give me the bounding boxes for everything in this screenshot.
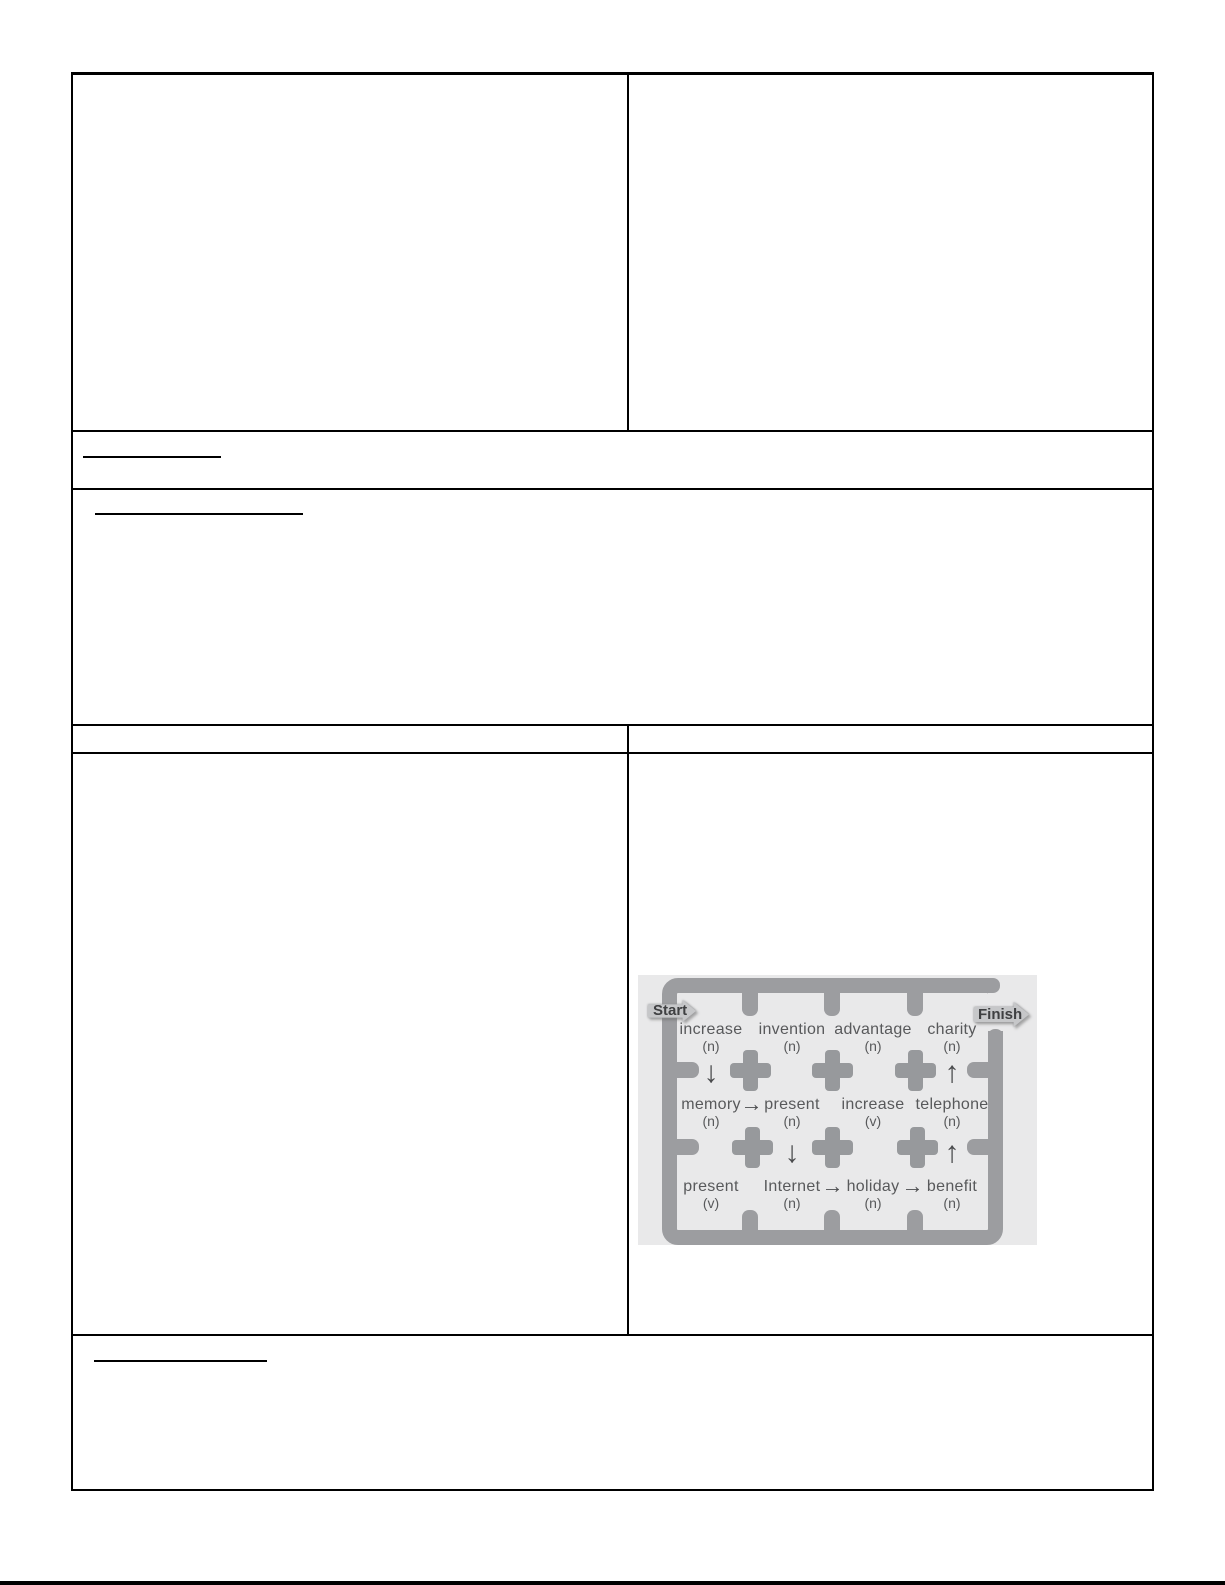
- maze-word-pos: (n): [702, 1113, 719, 1129]
- maze-word-pos: (n): [783, 1113, 800, 1129]
- path-arrow-right: →: [902, 1175, 924, 1197]
- maze-word-pos: (n): [943, 1113, 960, 1129]
- maze-word: benefit: [927, 1178, 977, 1195]
- maze-wall-tab: [967, 1139, 989, 1155]
- maze-word-pos: (n): [783, 1038, 800, 1054]
- maze-word-cell: benefit(n): [927, 1178, 977, 1212]
- maze-wall-tab: [676, 1139, 699, 1155]
- maze-cross-block: [732, 1127, 773, 1168]
- maze-word: telephone: [916, 1096, 989, 1113]
- maze-wall-endcap: [980, 978, 1000, 993]
- maze-word-cell: present(n): [764, 1096, 819, 1130]
- finish-label: Finish: [974, 1002, 1029, 1027]
- maze-cross-block: [812, 1050, 853, 1091]
- path-arrow-down: ↓: [785, 1135, 800, 1171]
- maze-word-pos: (v): [703, 1195, 719, 1211]
- maze-wall-tab: [824, 991, 840, 1016]
- maze-word: holiday: [847, 1178, 900, 1195]
- maze-wall-endcap: [988, 1029, 1003, 1045]
- path-arrow-up: ↑: [945, 1135, 960, 1171]
- cell-r1-left: [73, 75, 629, 430]
- maze-word-pos: (n): [864, 1195, 881, 1211]
- cell-r5-right: Start Finish increase(n)invention(n)adva…: [629, 754, 1152, 1334]
- cell-r5-left: [73, 754, 629, 1334]
- maze-word-cell: advantage(n): [834, 1021, 911, 1055]
- maze-wall-tab: [907, 991, 923, 1016]
- maze-word: present: [764, 1096, 819, 1113]
- cell-r4-left: [73, 726, 629, 752]
- maze-word-cell: increase(v): [842, 1096, 905, 1130]
- maze-word-cell: telephone(n): [916, 1096, 989, 1130]
- path-arrow-right: →: [822, 1175, 844, 1197]
- blank-answer-line: [94, 1360, 267, 1362]
- page-bottom-bar: [0, 1581, 1225, 1585]
- maze-word: increase: [842, 1096, 905, 1113]
- table-row-3: [73, 490, 1152, 726]
- maze-word-cell: Internet(n): [764, 1178, 821, 1212]
- maze-wall-tab: [742, 991, 758, 1016]
- maze-word-cell: holiday(n): [847, 1178, 900, 1212]
- document-page: Start Finish increase(n)invention(n)adva…: [0, 0, 1225, 1585]
- maze-cross-block: [895, 1050, 936, 1091]
- maze-word-cell: increase(n): [680, 1021, 743, 1055]
- maze-word: increase: [680, 1021, 743, 1038]
- cell-r1-right: [629, 75, 1152, 430]
- worksheet-table: Start Finish increase(n)invention(n)adva…: [71, 72, 1154, 1491]
- maze-cross-block: [730, 1050, 771, 1091]
- maze-word-pos: (n): [702, 1038, 719, 1054]
- maze-word-pos: (n): [943, 1038, 960, 1054]
- maze-word: charity: [927, 1021, 976, 1038]
- cell-r4-right: [629, 726, 1152, 752]
- finish-arrow-badge: Finish: [974, 1002, 1029, 1027]
- maze-word-pos: (n): [864, 1038, 881, 1054]
- start-label: Start: [648, 1000, 696, 1022]
- maze-word: present: [683, 1178, 738, 1195]
- maze-word-cell: charity(n): [927, 1021, 976, 1055]
- start-arrow-badge: Start: [648, 1000, 696, 1022]
- maze-word: memory: [681, 1096, 741, 1113]
- maze-word: advantage: [834, 1021, 911, 1038]
- blank-answer-line: [83, 456, 221, 458]
- maze-word-cell: invention(n): [759, 1021, 826, 1055]
- maze-wall-tab: [967, 1062, 989, 1078]
- maze-word: Internet: [764, 1178, 821, 1195]
- maze-word-cell: present(v): [683, 1178, 738, 1212]
- maze-word-pos: (n): [783, 1195, 800, 1211]
- maze-wall-tab: [742, 1210, 758, 1230]
- maze-word-pos: (n): [943, 1195, 960, 1211]
- maze-wall-tab: [907, 1210, 923, 1230]
- maze-cross-block: [897, 1127, 938, 1168]
- table-row-5: Start Finish increase(n)invention(n)adva…: [73, 754, 1152, 1336]
- maze-cross-block: [812, 1127, 853, 1168]
- table-row-1: [73, 75, 1152, 432]
- table-row-6: [73, 1336, 1152, 1489]
- blank-answer-line: [95, 513, 303, 515]
- path-arrow-down: ↓: [704, 1055, 719, 1091]
- maze-wall-tab: [824, 1210, 840, 1230]
- path-arrow-right: →: [741, 1093, 763, 1115]
- table-row-2: [73, 432, 1152, 490]
- table-row-4: [73, 726, 1152, 754]
- maze-word-cell: memory(n): [681, 1096, 741, 1130]
- maze-wall-tab: [676, 1062, 699, 1078]
- maze-figure: Start Finish increase(n)invention(n)adva…: [638, 975, 1037, 1245]
- path-arrow-up: ↑: [945, 1055, 960, 1091]
- maze-word-pos: (v): [865, 1113, 881, 1129]
- maze-word: invention: [759, 1021, 826, 1038]
